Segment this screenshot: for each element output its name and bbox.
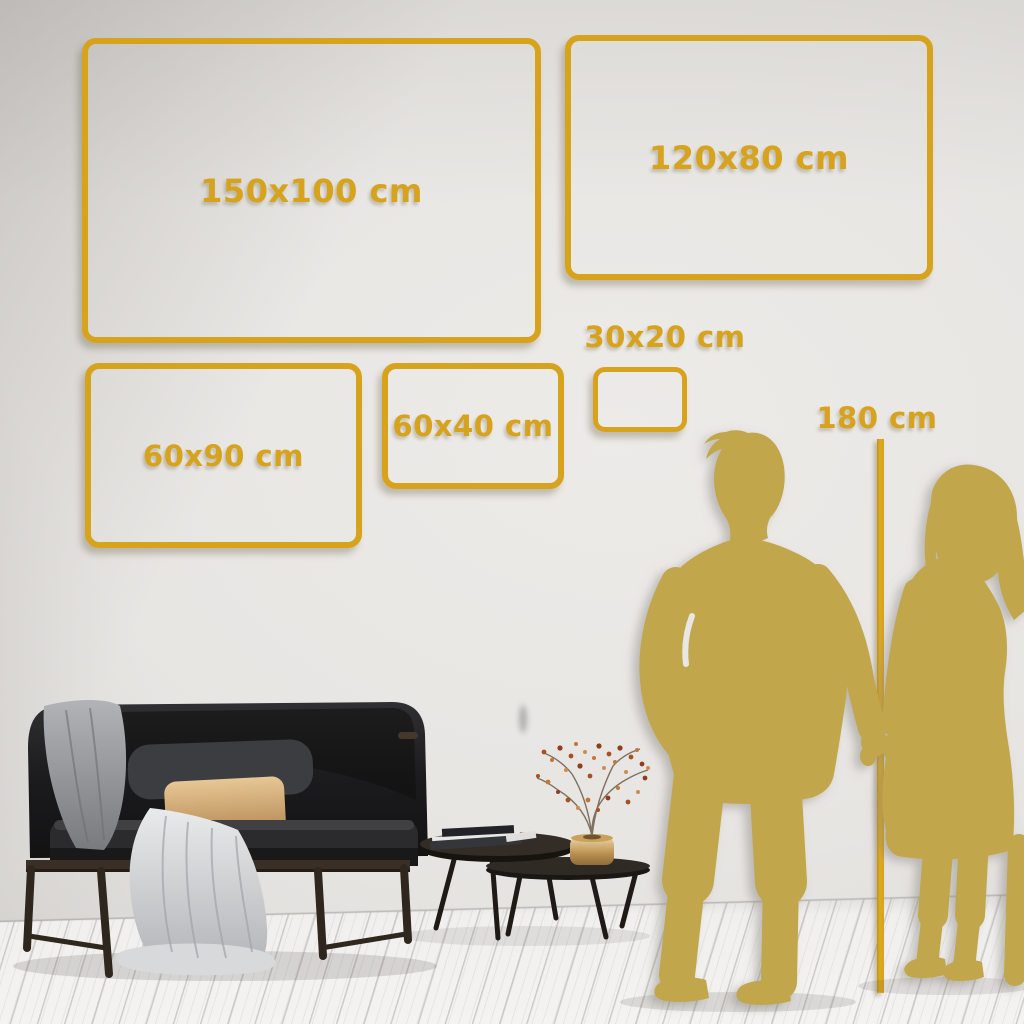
- height-reference-line: [877, 439, 884, 993]
- frame-30x20: [593, 367, 687, 432]
- canvas-size-guide-scene: 150x100 cm 120x80 cm 60x90 cm 60x40 cm 3…: [0, 0, 1024, 1024]
- height-reference-label: 180 cm: [812, 401, 942, 435]
- wall-smudge: [519, 705, 527, 733]
- size-label-150x100: 150x100 cm: [200, 172, 423, 210]
- frame-60x90: 60x90 cm: [85, 363, 362, 548]
- size-label-60x40: 60x40 cm: [393, 409, 554, 443]
- frame-150x100: 150x100 cm: [82, 38, 541, 343]
- size-label-120x80: 120x80 cm: [649, 139, 849, 177]
- size-label-60x90: 60x90 cm: [143, 439, 304, 473]
- size-label-30x20: 30x20 cm: [575, 320, 755, 354]
- frame-60x40: 60x40 cm: [382, 363, 564, 489]
- frame-120x80: 120x80 cm: [565, 35, 933, 280]
